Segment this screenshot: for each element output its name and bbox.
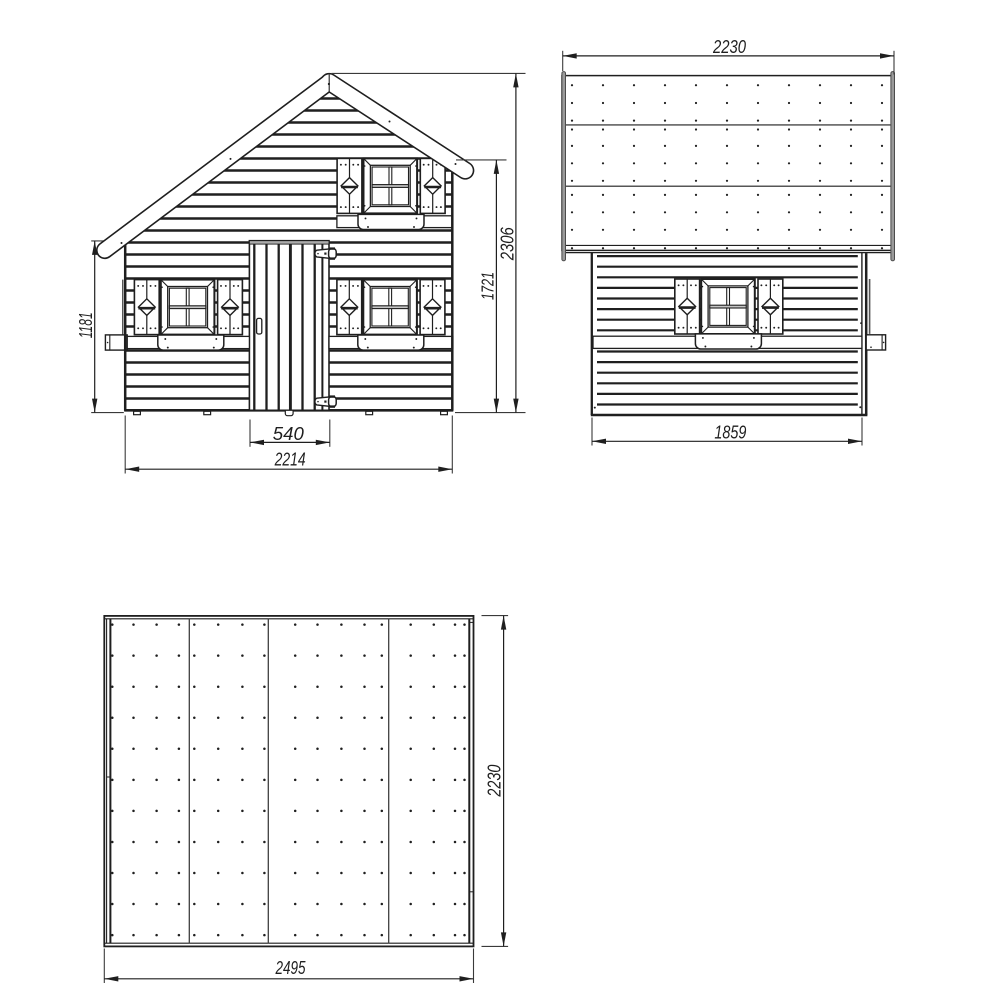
svg-text:1181: 1181 — [76, 312, 96, 338]
svg-text:1721: 1721 — [478, 272, 498, 300]
svg-text:540: 540 — [273, 423, 305, 444]
svg-text:1859: 1859 — [714, 422, 746, 443]
svg-text:2214: 2214 — [274, 448, 306, 469]
svg-text:2306: 2306 — [498, 226, 518, 261]
svg-text:2495: 2495 — [275, 957, 306, 978]
svg-text:2230: 2230 — [712, 36, 746, 57]
svg-text:2230: 2230 — [484, 765, 504, 798]
